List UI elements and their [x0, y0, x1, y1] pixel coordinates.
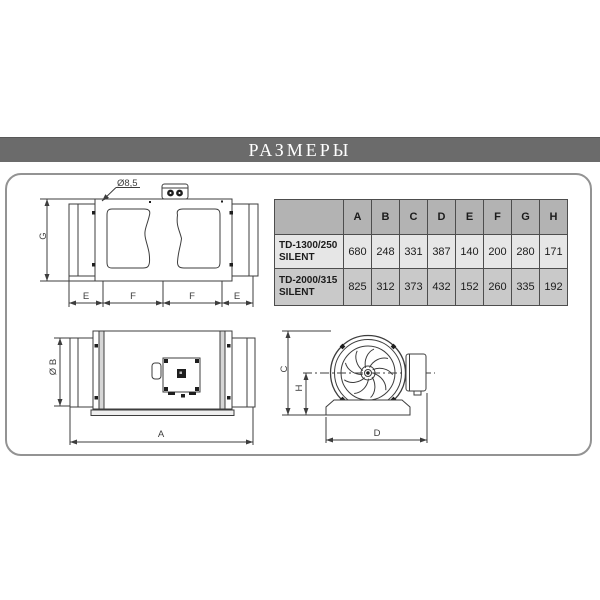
value-cell: 140 — [456, 235, 484, 269]
left-duct-collar — [69, 204, 95, 276]
value-cell: 280 — [512, 235, 540, 269]
value-cell: 680 — [344, 235, 372, 269]
dimensions-table: A B C D E F G H TD-1300/250 SILENT 680 2… — [274, 199, 568, 306]
model-line2: SILENT — [279, 287, 315, 298]
section-title: РАЗМЕРЫ — [249, 140, 352, 161]
value-cell: 387 — [428, 235, 456, 269]
col-header-d: D — [428, 200, 456, 235]
table-row: TD-1300/250 SILENT 680 248 331 387 140 2… — [275, 235, 568, 269]
dim-label-f2: F — [189, 291, 195, 302]
col-header-b: B — [372, 200, 400, 235]
col-header-c: C — [400, 200, 428, 235]
value-cell: 192 — [540, 269, 568, 306]
impeller — [344, 349, 393, 398]
mounting-foot — [326, 400, 410, 415]
value-cell: 260 — [484, 269, 512, 306]
table-row: TD-2000/315 SILENT 825 312 373 432 152 2… — [275, 269, 568, 306]
table-header-row: A B C D E F G H — [275, 200, 568, 235]
dim-label-ob: Ø B — [48, 359, 59, 375]
value-cell: 373 — [400, 269, 428, 306]
model-line1: TD-2000/315 — [279, 275, 337, 286]
dim-label-c: C — [279, 365, 290, 372]
model-name-cell: TD-2000/315 SILENT — [275, 269, 344, 306]
dim-label-h: H — [294, 384, 305, 391]
spec-sheet-page: РАЗМЕРЫ — [0, 0, 600, 600]
dim-label-f1: F — [130, 291, 136, 302]
fan-side-view-drawing: Ø8,5 G E F F E — [35, 176, 270, 311]
value-cell: 825 — [344, 269, 372, 306]
corner-cell — [275, 200, 344, 235]
dim-label-d: D — [374, 428, 381, 439]
fan-end-view-drawing: C H D — [278, 323, 458, 458]
dim-label-a: A — [158, 429, 165, 440]
value-cell: 248 — [372, 235, 400, 269]
col-header-g: G — [512, 200, 540, 235]
model-line2: SILENT — [279, 252, 315, 263]
value-cell: 152 — [456, 269, 484, 306]
value-cell: 432 — [428, 269, 456, 306]
col-header-a: A — [344, 200, 372, 235]
fan-top-view-drawing: Ø B A — [35, 323, 270, 458]
value-cell: 312 — [372, 269, 400, 306]
value-cell: 331 — [400, 235, 428, 269]
col-header-e: E — [456, 200, 484, 235]
right-duct-collar-top — [232, 338, 255, 407]
dim-label-e1: E — [83, 291, 89, 302]
hole-diameter-label: Ø8,5 — [117, 178, 138, 189]
col-header-f: F — [484, 200, 512, 235]
casing-bottom-band — [91, 410, 234, 416]
value-cell: 200 — [484, 235, 512, 269]
right-duct-collar — [232, 204, 258, 276]
value-cell: 171 — [540, 235, 568, 269]
left-duct-collar-top — [70, 338, 93, 407]
section-title-bar: РАЗМЕРЫ — [0, 137, 600, 162]
value-cell: 335 — [512, 269, 540, 306]
dim-label-e2: E — [234, 291, 240, 302]
dim-label-g: G — [38, 232, 49, 239]
col-header-h: H — [540, 200, 568, 235]
model-line1: TD-1300/250 — [279, 240, 337, 251]
model-name-cell: TD-1300/250 SILENT — [275, 235, 344, 269]
terminal-box-side — [162, 184, 188, 199]
terminal-box-end — [406, 354, 426, 395]
fan-casing-side — [95, 199, 232, 281]
